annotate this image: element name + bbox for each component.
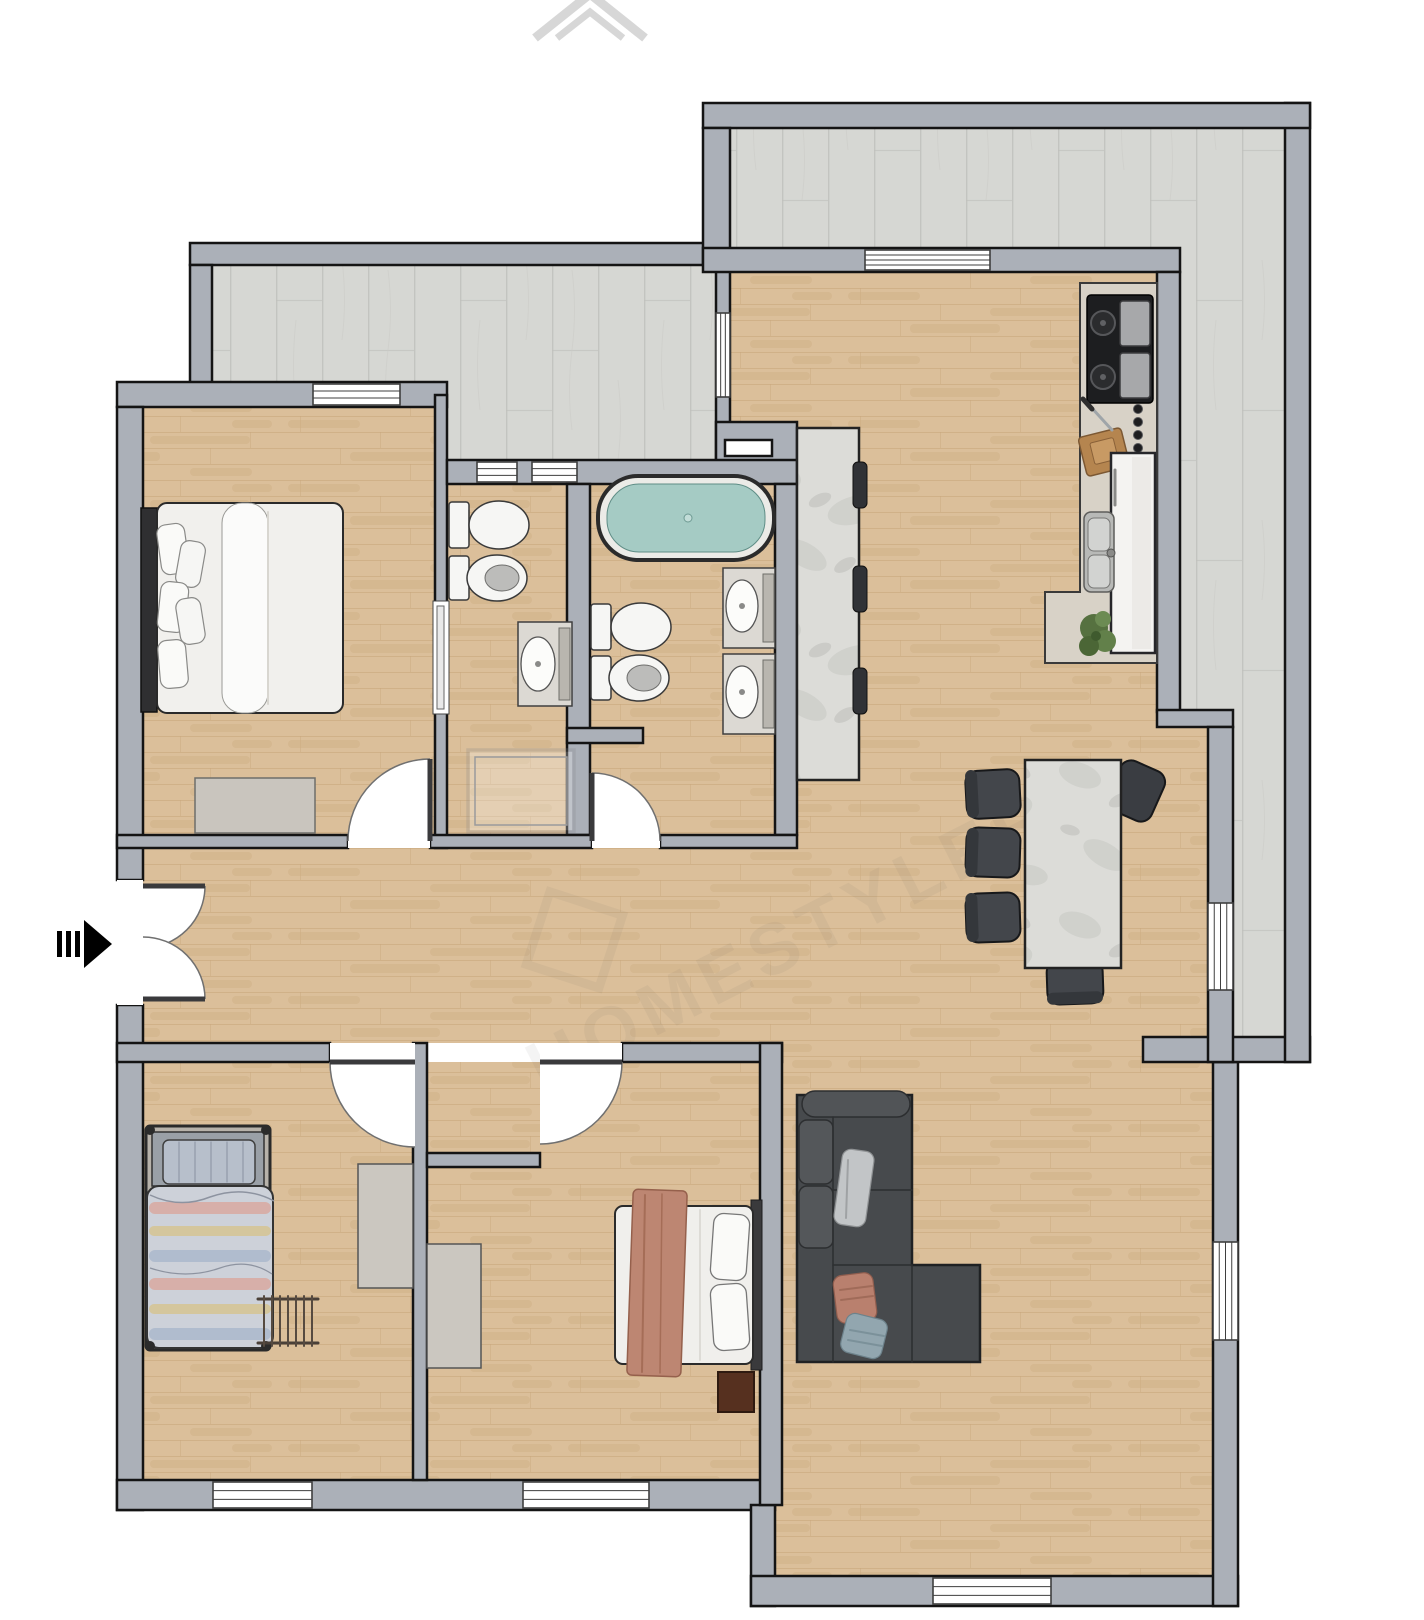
niche-south-wall (427, 1153, 540, 1167)
toilet-bath1 (449, 501, 529, 549)
bath1-terrace-window-b (532, 462, 577, 482)
terrace-east-floor-lower (1233, 710, 1285, 1037)
dining-chair-2 (965, 827, 1021, 878)
wardrobe-bedroom2 (358, 1164, 413, 1288)
floor-plan-stage: HOMESTYLER (0, 0, 1424, 1620)
dining-chair-1 (965, 769, 1021, 820)
vanity-bath2-b (723, 654, 775, 734)
corridor-south-wall-east (622, 1043, 782, 1062)
bed-double-guest (615, 1189, 762, 1377)
bedroom1-north-window (313, 384, 400, 405)
main-north-sliding-window (865, 250, 990, 270)
vanity-bath1 (518, 622, 572, 706)
terrace-left-top-wall (190, 243, 713, 265)
bedroom3-living-wall (760, 1043, 782, 1505)
bath2-east-wall (775, 484, 797, 835)
terrace-east-floor-upper (1180, 248, 1285, 710)
kitchen-island (797, 428, 867, 780)
north-outer-wall (703, 103, 1310, 128)
west-outer-wall-upper (117, 407, 143, 880)
bedroom3-south-window (523, 1482, 649, 1508)
passage-floor (775, 1037, 1143, 1062)
floor-plan: HOMESTYLER (0, 0, 1424, 1620)
cooktop (1087, 295, 1153, 403)
baths-south-wall-b (430, 835, 592, 848)
bedroom2-south-window (213, 1482, 312, 1508)
wall-niche (725, 440, 772, 456)
bidet-bath2 (591, 655, 669, 701)
bath1-terrace-window-a (477, 462, 517, 482)
baths-south-wall-c (660, 835, 797, 848)
terrace-west-floor-b (447, 382, 716, 460)
east-bump-floor (1157, 727, 1208, 1037)
bidet-bath1 (449, 555, 527, 601)
living-south-window (933, 1578, 1051, 1604)
main-east-wall-upper (1157, 272, 1180, 712)
living-east-window (1213, 1242, 1238, 1340)
wardrobe-bedroom3 (427, 1244, 481, 1368)
bathtub (598, 476, 774, 560)
vanity-bath2-a (723, 568, 775, 648)
dresser-master (195, 778, 315, 833)
terrace-main-window (716, 313, 730, 397)
east-outer-wall-terrace (1285, 103, 1310, 1062)
terrace-west-floor-a (212, 265, 716, 382)
terrace-left-west-wall (190, 265, 212, 386)
bedroom2-bedroom3-wall (413, 1043, 427, 1480)
dining-east-window (1208, 903, 1233, 990)
dining-chair-3 (965, 892, 1021, 943)
baths-south-wall-a (117, 835, 348, 848)
bed-double-master (141, 503, 343, 713)
bath2-partition-wall (567, 728, 643, 743)
kitchen-plant (1079, 611, 1116, 656)
terrace-north-floor (728, 128, 1285, 248)
kitchen-sink (1084, 512, 1115, 592)
entry-arrow (57, 920, 112, 968)
bath1-sliding-door (433, 601, 449, 714)
homestyler-logo-top (535, 0, 645, 38)
annotations-layer (57, 920, 112, 968)
west-outer-wall-lower (117, 1005, 143, 1510)
fridge (1111, 453, 1155, 653)
main-east-jog-wall (1157, 710, 1233, 727)
dining-table (1025, 760, 1121, 968)
bed-single (145, 1125, 274, 1351)
terrace-main-west-wall-upper (703, 128, 730, 265)
nightstand (718, 1372, 754, 1412)
main-east-wall-lower (1208, 727, 1233, 1062)
shower-bath1 (468, 750, 574, 832)
corridor-south-wall-west (117, 1043, 330, 1062)
toilet-bath2 (591, 603, 671, 651)
